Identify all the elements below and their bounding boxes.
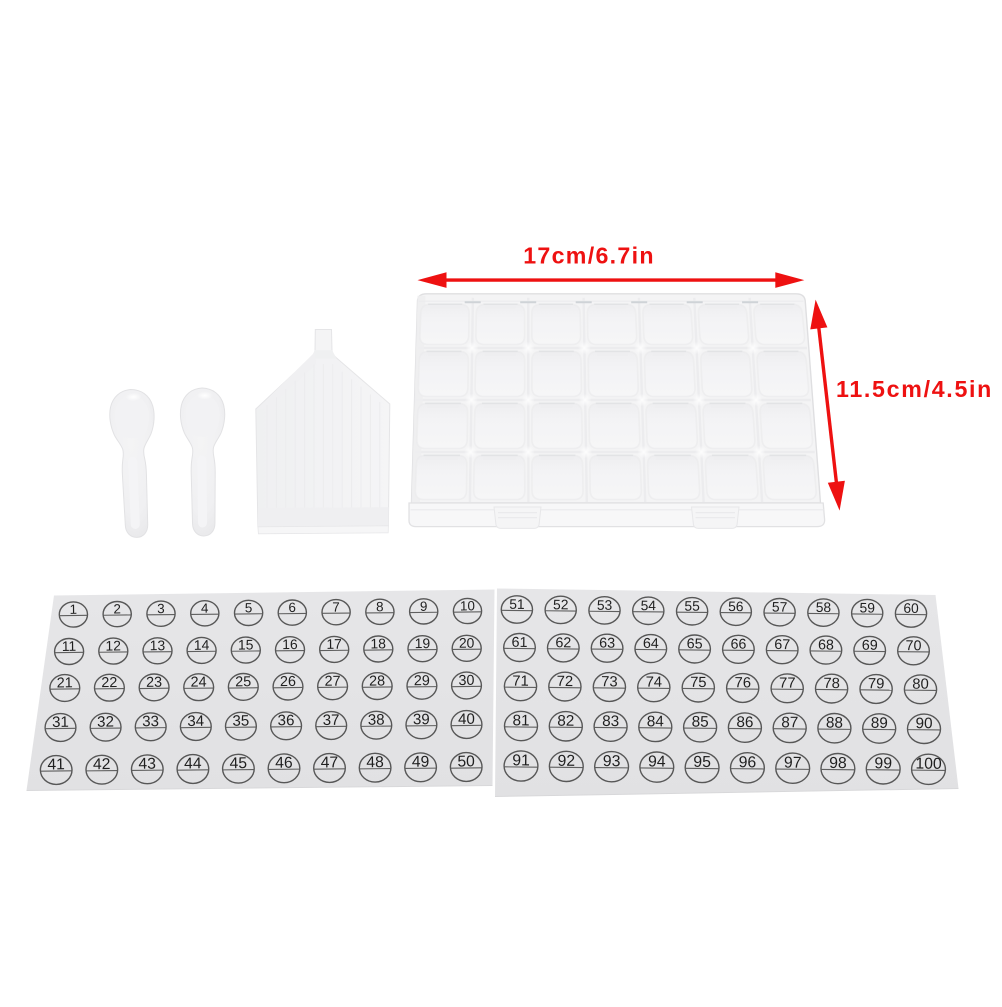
svg-text:51: 51 [509, 597, 525, 612]
svg-text:1: 1 [70, 602, 78, 617]
svg-text:77: 77 [779, 676, 796, 692]
svg-text:44: 44 [184, 755, 202, 772]
svg-text:31: 31 [52, 714, 69, 731]
svg-text:8: 8 [376, 599, 384, 614]
svg-text:45: 45 [230, 755, 248, 772]
svg-text:53: 53 [597, 598, 613, 613]
svg-text:39: 39 [413, 711, 430, 728]
svg-text:23: 23 [146, 675, 162, 691]
svg-text:5: 5 [245, 600, 253, 615]
svg-text:35: 35 [232, 713, 249, 730]
svg-text:83: 83 [602, 713, 619, 730]
svg-text:82: 82 [557, 713, 574, 730]
svg-text:89: 89 [871, 715, 888, 732]
svg-text:22: 22 [101, 675, 117, 691]
svg-text:73: 73 [601, 674, 618, 690]
svg-text:42: 42 [93, 756, 111, 773]
svg-text:30: 30 [458, 673, 474, 689]
svg-text:72: 72 [557, 674, 574, 690]
svg-text:37: 37 [323, 712, 340, 729]
svg-text:63: 63 [599, 636, 615, 652]
svg-text:93: 93 [603, 753, 621, 770]
svg-text:12: 12 [105, 637, 121, 653]
svg-text:97: 97 [784, 755, 802, 772]
svg-text:64: 64 [643, 636, 659, 652]
svg-text:60: 60 [903, 601, 919, 616]
svg-text:62: 62 [555, 635, 571, 651]
svg-text:46: 46 [275, 755, 293, 772]
svg-text:65: 65 [687, 636, 703, 652]
svg-text:15: 15 [238, 636, 254, 652]
svg-text:66: 66 [730, 637, 746, 653]
svg-text:55: 55 [684, 599, 700, 614]
svg-text:25: 25 [235, 674, 251, 690]
svg-text:2: 2 [113, 601, 121, 616]
svg-text:17: 17 [326, 636, 342, 652]
svg-text:19: 19 [415, 635, 431, 651]
svg-text:14: 14 [194, 637, 210, 653]
svg-text:56: 56 [728, 599, 744, 614]
svg-text:80: 80 [912, 677, 929, 693]
svg-text:86: 86 [736, 714, 753, 731]
svg-text:68: 68 [818, 637, 834, 653]
svg-text:36: 36 [278, 712, 295, 729]
svg-text:9: 9 [420, 599, 428, 614]
svg-text:18: 18 [370, 635, 386, 651]
svg-text:48: 48 [366, 754, 384, 771]
svg-text:21: 21 [57, 675, 73, 691]
svg-text:34: 34 [187, 713, 204, 730]
svg-text:79: 79 [868, 676, 885, 692]
svg-text:69: 69 [862, 638, 878, 654]
svg-text:27: 27 [324, 674, 340, 690]
svg-text:96: 96 [739, 754, 757, 771]
svg-text:99: 99 [874, 755, 892, 772]
svg-text:61: 61 [512, 635, 528, 651]
svg-text:47: 47 [321, 754, 339, 771]
svg-text:100: 100 [915, 756, 942, 773]
svg-text:57: 57 [772, 600, 788, 615]
svg-text:84: 84 [647, 713, 665, 730]
svg-text:54: 54 [641, 598, 657, 613]
svg-text:24: 24 [191, 675, 207, 691]
svg-text:20: 20 [459, 635, 475, 651]
svg-text:38: 38 [368, 712, 385, 729]
svg-text:81: 81 [512, 712, 529, 729]
svg-text:76: 76 [734, 675, 751, 691]
svg-text:10: 10 [460, 598, 475, 613]
svg-text:40: 40 [458, 711, 475, 728]
svg-text:33: 33 [142, 713, 159, 730]
svg-text:11: 11 [62, 638, 77, 654]
svg-text:41: 41 [47, 756, 65, 773]
svg-text:67: 67 [774, 637, 790, 653]
svg-text:29: 29 [414, 673, 430, 689]
svg-text:88: 88 [826, 715, 843, 732]
svg-text:59: 59 [859, 600, 875, 615]
svg-text:92: 92 [557, 753, 575, 770]
svg-text:74: 74 [646, 675, 663, 691]
svg-text:3: 3 [157, 601, 165, 616]
svg-text:52: 52 [553, 597, 569, 612]
svg-text:28: 28 [369, 673, 385, 689]
svg-text:11.5cm/4.5in: 11.5cm/4.5in [836, 376, 993, 402]
svg-text:98: 98 [829, 755, 847, 772]
svg-text:78: 78 [823, 676, 840, 692]
svg-text:32: 32 [97, 714, 114, 731]
svg-text:95: 95 [693, 754, 711, 771]
svg-text:50: 50 [457, 753, 475, 770]
svg-text:70: 70 [906, 638, 922, 654]
svg-text:13: 13 [150, 637, 166, 653]
svg-text:94: 94 [648, 753, 666, 770]
svg-text:26: 26 [280, 674, 296, 690]
svg-text:4: 4 [201, 601, 209, 616]
svg-text:71: 71 [512, 674, 529, 690]
svg-text:58: 58 [816, 600, 832, 615]
svg-text:49: 49 [412, 754, 430, 771]
svg-text:43: 43 [138, 756, 156, 773]
svg-text:17cm/6.7in: 17cm/6.7in [523, 243, 655, 269]
svg-text:85: 85 [692, 714, 709, 731]
svg-text:75: 75 [690, 675, 707, 691]
svg-text:87: 87 [781, 714, 798, 731]
svg-text:16: 16 [282, 636, 298, 652]
svg-text:90: 90 [915, 715, 932, 732]
svg-text:7: 7 [332, 600, 340, 615]
svg-text:6: 6 [288, 600, 296, 615]
svg-text:91: 91 [512, 752, 530, 769]
